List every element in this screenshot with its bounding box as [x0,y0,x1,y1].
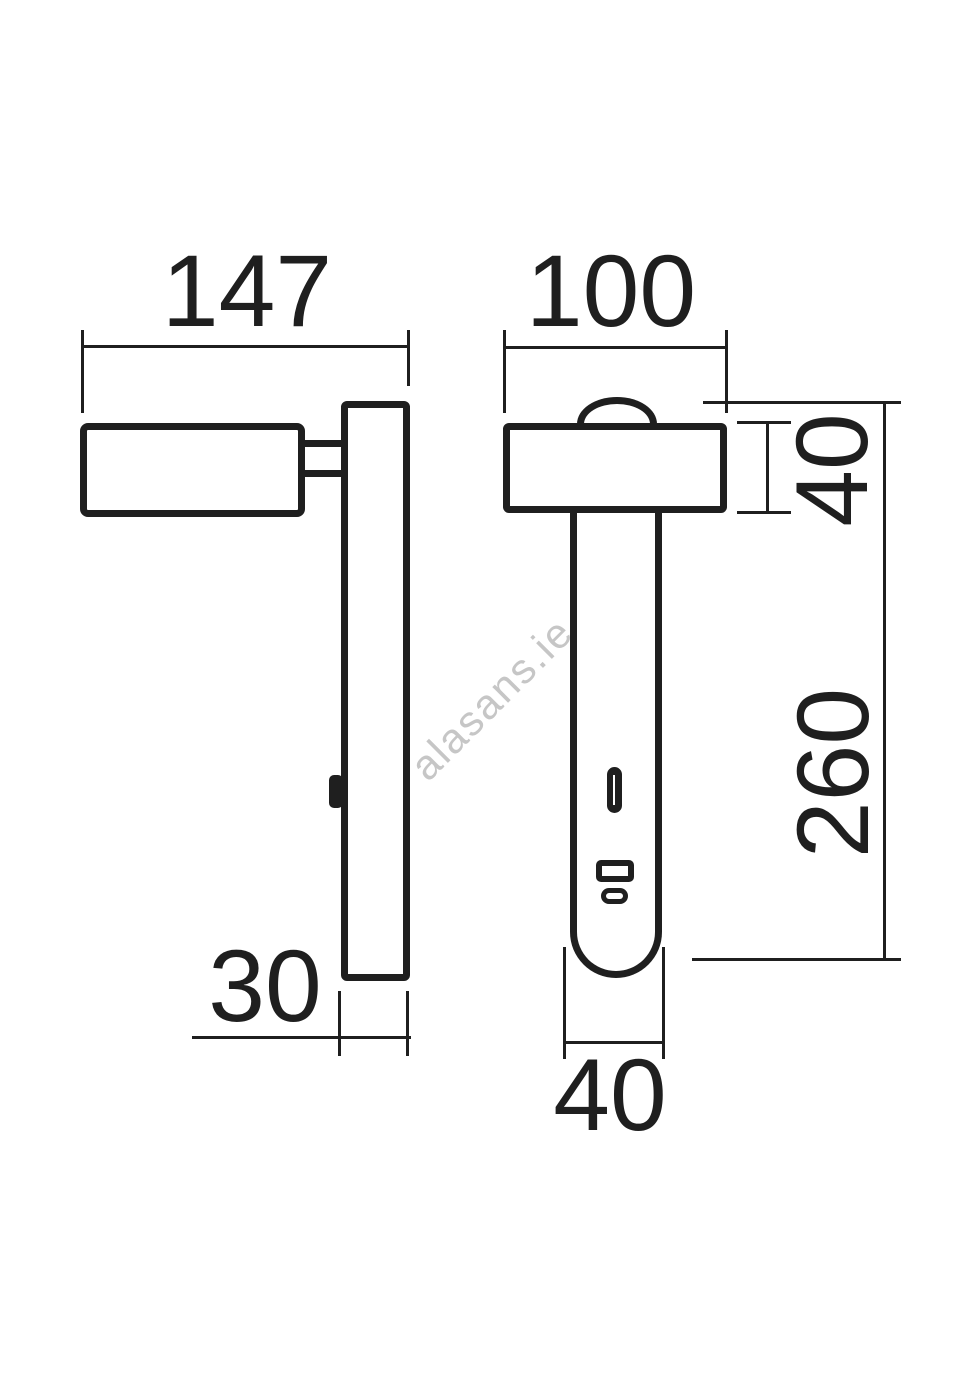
dim-label-40-stem: 40 [553,1044,666,1146]
switch-rect-icon [596,860,634,882]
dim-ext-147-right [407,330,410,386]
side-view-connector-arm [298,440,346,477]
dim-label-260: 260 [782,688,884,858]
watermark-text: alasans.ie [401,608,583,790]
switch-pill-icon [601,888,628,904]
front-view-knob-dome [577,397,657,424]
side-view-wall-plate [341,401,410,981]
side-view-lamp-head [80,423,305,517]
usb-port-slit [613,775,615,805]
front-view-stem [570,505,662,978]
dim-ext-30-right [406,991,409,1056]
dim-ext-260-bottom [692,958,901,961]
dim-line-40-head [766,423,769,513]
technical-drawing-canvas: 147 30 100 40 260 40 alasans.ie [0,0,980,1400]
dim-ext-260-top [703,401,901,404]
front-view-lamp-head [503,423,727,513]
dim-label-30: 30 [208,935,321,1037]
dim-ext-147-left [81,330,84,413]
dim-label-147: 147 [162,240,332,342]
dim-ext-30-left [338,991,341,1056]
dim-label-100: 100 [526,240,696,342]
usb-port-icon [607,767,622,813]
dim-ext-100-left [503,330,506,413]
dim-label-40-head: 40 [781,413,883,526]
